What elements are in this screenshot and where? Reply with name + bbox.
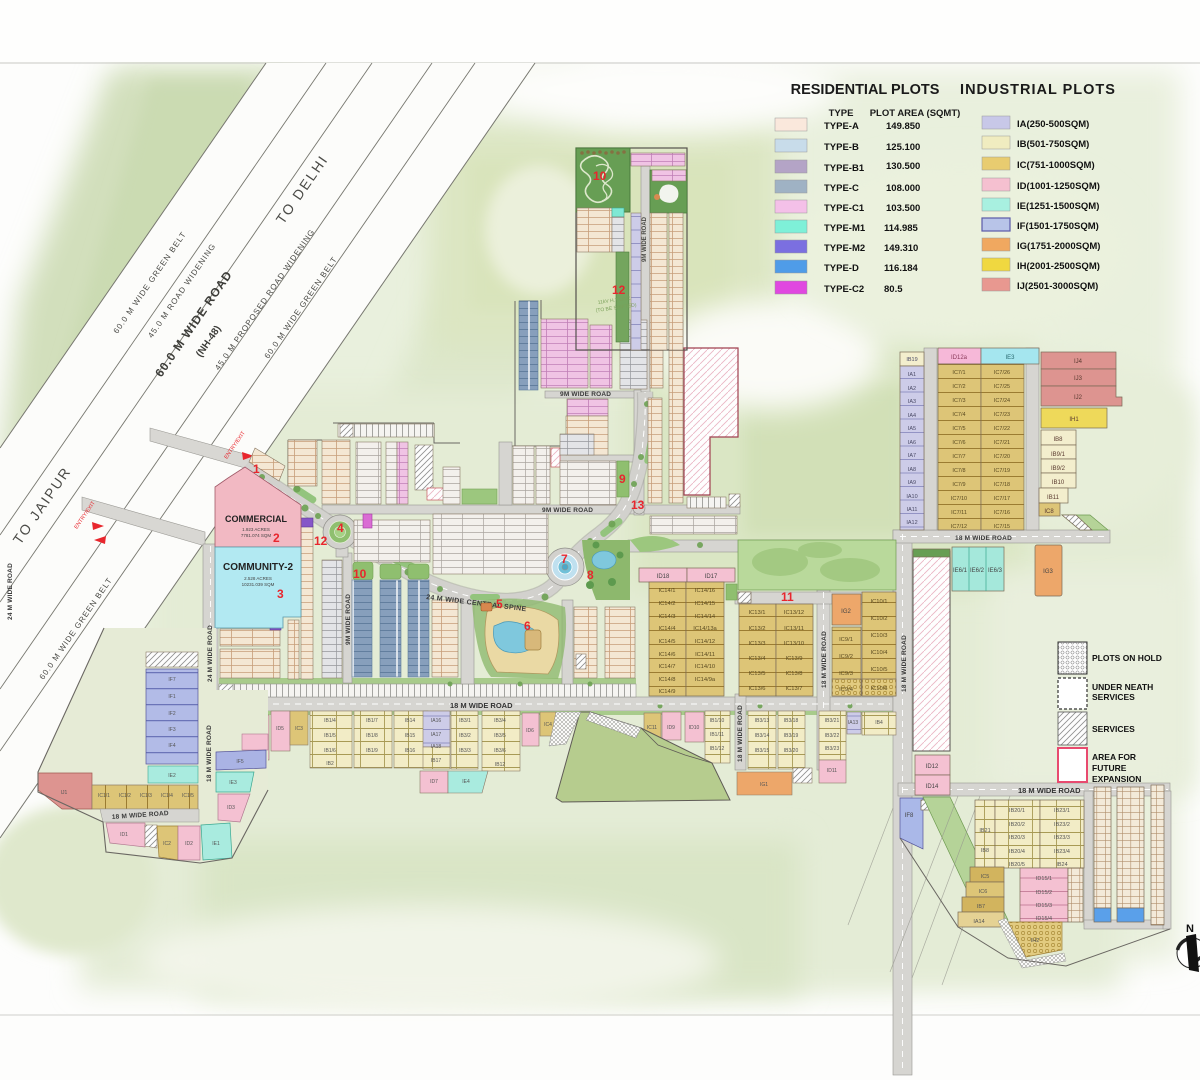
svg-text:IC10/3: IC10/3 [870,633,887,639]
svg-text:IC8: IC8 [1044,509,1054,515]
svg-text:IC11: IC11 [647,725,657,731]
svg-text:IC7/25: IC7/25 [994,384,1010,390]
svg-text:TYPE-M2: TYPE-M2 [824,243,865,254]
svg-text:N: N [1186,923,1194,935]
svg-text:IA5: IA5 [908,426,916,432]
svg-text:IB20/1: IB20/1 [1009,808,1025,814]
svg-text:IC13/6: IC13/6 [748,686,765,692]
svg-text:IC7/11: IC7/11 [951,510,967,516]
svg-text:IA6: IA6 [908,440,916,446]
svg-text:IC13/12: IC13/12 [784,610,804,616]
svg-text:IE3: IE3 [229,780,237,786]
svg-text:IC10/6: IC10/6 [870,686,887,692]
svg-text:IC7/20: IC7/20 [994,454,1010,460]
svg-text:12: 12 [314,534,328,548]
svg-text:IB1/9: IB1/9 [366,748,378,754]
svg-text:125.100: 125.100 [886,142,920,153]
svg-text:IA10: IA10 [906,494,917,500]
svg-text:18 M WIDE ROAD: 18 M WIDE ROAD [450,701,513,710]
svg-text:SERVICES: SERVICES [1092,724,1135,734]
svg-text:114.985: 114.985 [884,223,919,234]
svg-text:IE4: IE4 [462,779,470,785]
svg-text:IC14/6: IC14/6 [658,652,675,658]
svg-text:ID(1001-1250SQM): ID(1001-1250SQM) [1017,181,1100,192]
svg-text:IC13/9: IC13/9 [785,656,802,662]
svg-text:IB3/23: IB3/23 [825,746,840,752]
svg-text:IB3/22: IB3/22 [825,733,840,739]
svg-text:IC7/12: IC7/12 [951,524,967,530]
svg-text:IA16: IA16 [431,718,442,724]
svg-text:COMMERCIAL: COMMERCIAL [225,514,287,524]
svg-text:IB8: IB8 [1053,437,1063,443]
svg-text:SERVICES: SERVICES [1092,692,1135,702]
svg-text:ID18: ID18 [657,574,670,580]
svg-text:18 M WIDE ROAD: 18 M WIDE ROAD [1018,786,1081,795]
svg-text:ID14: ID14 [926,784,939,790]
svg-text:IA(250-500SQM): IA(250-500SQM) [1017,119,1089,130]
svg-text:IB3/6: IB3/6 [494,748,506,754]
svg-text:IC7/5: IC7/5 [952,426,965,432]
svg-text:IC14/9: IC14/9 [658,689,675,695]
svg-text:IE6/3: IE6/3 [988,568,1003,574]
svg-text:ID9: ID9 [667,725,675,731]
svg-text:ID15/1: ID15/1 [1036,876,1052,882]
svg-text:IC7/21: IC7/21 [994,440,1010,446]
svg-text:IC1/2: IC1/2 [119,793,131,799]
svg-text:9M WIDE ROAD: 9M WIDE ROAD [560,391,611,398]
svg-text:IC14/8: IC14/8 [658,677,675,683]
svg-text:IC7/23: IC7/23 [994,412,1010,418]
svg-text:6: 6 [524,619,531,633]
svg-text:TYPE-A: TYPE-A [824,121,859,132]
svg-text:IC1/5: IC1/5 [182,793,194,799]
svg-text:IB8: IB8 [981,848,989,854]
svg-text:IB1/10: IB1/10 [710,718,725,724]
svg-text:IH2: IH2 [1031,938,1040,944]
svg-text:7781.074 SQM: 7781.074 SQM [241,533,272,538]
svg-text:IC13/3: IC13/3 [748,641,765,647]
svg-text:IA3: IA3 [908,399,916,405]
svg-text:4: 4 [337,521,344,535]
svg-text:IJ4: IJ4 [1074,359,1083,365]
svg-text:IC14/10: IC14/10 [695,664,715,670]
svg-text:IB23/3: IB23/3 [1054,835,1070,841]
svg-text:IC7/6: IC7/6 [952,440,965,446]
svg-text:IB1/12: IB1/12 [710,746,725,752]
svg-text:IB24: IB24 [1056,862,1067,868]
svg-text:IC7/19: IC7/19 [994,468,1010,474]
svg-text:IF5: IF5 [236,759,243,765]
svg-text:TYPE-C2: TYPE-C2 [824,284,864,295]
svg-text:11: 11 [781,590,794,604]
svg-text:IC7/26: IC7/26 [994,370,1010,376]
svg-text:IB16: IB16 [405,748,416,754]
svg-text:ID2: ID2 [185,841,193,847]
svg-text:18 M WIDE ROAD: 18 M WIDE ROAD [737,705,744,762]
svg-text:IA18: IA18 [431,744,442,750]
svg-text:IB1/8: IB1/8 [366,733,378,739]
svg-text:IC14/13a: IC14/13a [693,626,717,632]
svg-text:COMMUNITY-2: COMMUNITY-2 [223,562,293,573]
svg-text:80.5: 80.5 [884,284,903,295]
svg-text:IA9: IA9 [908,480,916,486]
svg-text:IF3: IF3 [168,727,175,733]
svg-text:IC14/3: IC14/3 [658,614,675,620]
svg-text:10: 10 [353,567,367,581]
svg-text:IC7/24: IC7/24 [994,398,1010,404]
svg-text:1.923 ACRES: 1.923 ACRES [242,527,270,532]
svg-text:IC3: IC3 [295,726,303,732]
svg-text:IB12: IB12 [495,762,506,768]
svg-text:IC13/7: IC13/7 [785,686,802,692]
svg-text:IC1/4: IC1/4 [161,793,173,799]
svg-text:IB20/5: IB20/5 [1009,862,1025,868]
svg-text:IB20/4: IB20/4 [1009,849,1025,855]
svg-text:9M WIDE ROAD: 9M WIDE ROAD [345,594,352,645]
svg-text:TYPE: TYPE [829,108,854,119]
svg-text:IB14: IB14 [405,718,416,724]
svg-text:IB3/21: IB3/21 [825,718,840,724]
svg-text:IB15: IB15 [405,733,416,739]
svg-text:3: 3 [277,587,284,601]
svg-text:IB3/15: IB3/15 [755,748,770,754]
svg-text:IG(1751-2000SQM): IG(1751-2000SQM) [1017,241,1100,252]
svg-text:IE1: IE1 [212,841,220,847]
svg-text:IC13/2: IC13/2 [748,626,765,632]
svg-text:130.500: 130.500 [886,161,920,172]
svg-text:IC7/3: IC7/3 [952,398,965,404]
svg-text:TYPE-C: TYPE-C [824,183,859,194]
svg-text:7: 7 [561,552,568,566]
svg-text:116.184: 116.184 [884,263,919,274]
svg-text:IF(1501-1750SQM): IF(1501-1750SQM) [1017,221,1099,232]
svg-text:IC2: IC2 [163,841,171,847]
svg-text:18 M WIDE ROAD: 18 M WIDE ROAD [955,535,1012,542]
svg-text:IB3/13: IB3/13 [755,718,770,724]
svg-text:IC7/16: IC7/16 [994,510,1010,516]
svg-text:IC1/3: IC1/3 [140,793,152,799]
svg-text:8: 8 [587,568,594,582]
svg-text:IC10/2: IC10/2 [870,616,887,622]
svg-text:IE6/2: IE6/2 [970,568,985,574]
svg-text:ID15/2: ID15/2 [1036,890,1052,896]
svg-text:IF2: IF2 [168,711,175,717]
svg-text:IC7/9: IC7/9 [952,482,965,488]
svg-text:IB4: IB4 [875,720,883,726]
svg-text:INDUSTRIAL PLOTS: INDUSTRIAL PLOTS [960,82,1116,98]
svg-text:IA4: IA4 [908,413,916,419]
svg-text:ID5: ID5 [276,726,284,732]
svg-text:IC14/4: IC14/4 [658,626,676,632]
svg-text:12: 12 [612,283,626,297]
svg-text:18 M WIDE ROAD: 18 M WIDE ROAD [206,725,213,782]
svg-text:IB17: IB17 [431,758,442,764]
svg-text:IA11: IA11 [907,507,918,513]
svg-text:IC13/10: IC13/10 [784,641,804,647]
svg-text:IA17: IA17 [431,732,442,738]
svg-text:IB9/1: IB9/1 [1051,452,1066,458]
svg-text:IC(751-1000SQM): IC(751-1000SQM) [1017,160,1095,171]
svg-text:IF4: IF4 [168,743,175,749]
svg-text:ID15/4: ID15/4 [1036,916,1052,922]
svg-text:108.000: 108.000 [886,183,920,194]
svg-text:IC5: IC5 [981,874,990,880]
svg-text:IC10/1: IC10/1 [870,599,887,605]
svg-text:IG3: IG3 [1043,569,1053,575]
svg-text:IJ(2501-3000SQM): IJ(2501-3000SQM) [1017,281,1098,292]
svg-text:ID11: ID11 [827,768,837,774]
svg-text:IC14/12: IC14/12 [695,639,715,645]
svg-text:IB1/7: IB1/7 [366,718,378,724]
svg-text:IC7/4: IC7/4 [952,412,965,418]
svg-text:IE3: IE3 [1005,355,1015,361]
svg-text:IC13/4: IC13/4 [748,656,766,662]
svg-text:PLOT AREA (SQMT): PLOT AREA (SQMT) [870,108,961,119]
svg-text:IA13: IA13 [848,720,859,726]
svg-text:ID7: ID7 [430,779,438,785]
svg-text:ID12a: ID12a [951,355,968,361]
svg-text:IB23/2: IB23/2 [1054,822,1070,828]
svg-text:IC13/11: IC13/11 [784,626,804,632]
svg-text:IC7/1: IC7/1 [952,370,965,376]
svg-text:IB3/20: IB3/20 [784,748,799,754]
svg-text:IB3/3: IB3/3 [459,748,471,754]
svg-text:IG1: IG1 [760,782,768,788]
svg-text:IB7: IB7 [977,904,985,910]
svg-text:IC7/8: IC7/8 [952,468,965,474]
svg-text:IB3/2: IB3/2 [459,733,471,739]
svg-text:IC9/1: IC9/1 [839,637,853,643]
svg-text:IC7/10: IC7/10 [951,496,967,502]
svg-text:IA7: IA7 [908,453,916,459]
svg-text:IC9/2: IC9/2 [839,654,853,660]
svg-text:ID17: ID17 [705,574,718,580]
svg-text:IC1/1: IC1/1 [98,793,110,799]
svg-text:18 M WIDE ROAD: 18 M WIDE ROAD [901,635,908,692]
svg-text:18 M WIDE ROAD: 18 M WIDE ROAD [821,631,828,688]
svg-text:IC14/1: IC14/1 [658,588,675,594]
svg-text:RESIDENTIAL PLOTS: RESIDENTIAL PLOTS [791,82,940,98]
svg-text:IC7/18: IC7/18 [994,482,1010,488]
svg-text:IC10/4: IC10/4 [870,650,888,656]
svg-text:IA2: IA2 [908,386,916,392]
svg-text:13: 13 [631,498,645,512]
svg-text:IB3/14: IB3/14 [755,733,770,739]
svg-text:TYPE-B1: TYPE-B1 [824,163,865,174]
svg-text:IG2: IG2 [841,609,851,615]
svg-text:IB1/4: IB1/4 [324,718,336,724]
svg-text:IC7/17: IC7/17 [994,496,1010,502]
svg-text:IE2: IE2 [168,773,176,779]
svg-text:IC14/2: IC14/2 [658,601,675,607]
svg-text:ID6: ID6 [526,728,534,734]
svg-text:IC6: IC6 [979,889,988,895]
svg-text:IC7/22: IC7/22 [994,426,1010,432]
svg-text:IC7/2: IC7/2 [952,384,965,390]
svg-text:IF1: IF1 [168,694,175,700]
svg-text:IC14/15: IC14/15 [695,601,715,607]
svg-text:IC14/5: IC14/5 [658,639,675,645]
svg-text:5: 5 [496,597,503,611]
svg-text:2.528 ACRES: 2.528 ACRES [244,576,272,581]
svg-text:IJ3: IJ3 [1074,376,1083,382]
svg-text:IC14/14: IC14/14 [695,614,716,620]
svg-text:10231.039 SQM: 10231.039 SQM [242,582,275,587]
svg-text:IB20/2: IB20/2 [1009,822,1025,828]
svg-text:IC14/16: IC14/16 [695,588,715,594]
svg-text:IC7/7: IC7/7 [952,454,965,460]
svg-text:IC13/5: IC13/5 [748,671,765,677]
svg-text:IC9/3: IC9/3 [839,671,853,677]
svg-text:IB1/5: IB1/5 [324,733,336,739]
svg-text:2: 2 [273,531,280,545]
svg-text:149.850: 149.850 [886,121,920,132]
svg-text:IC14/9a: IC14/9a [695,677,716,683]
svg-text:1: 1 [253,462,260,476]
svg-text:ID1: ID1 [120,832,128,838]
svg-text:IB3/19: IB3/19 [784,733,799,739]
svg-text:IC4: IC4 [544,722,552,728]
svg-text:IB23/4: IB23/4 [1054,849,1070,855]
svg-text:IA14: IA14 [973,919,984,925]
svg-text:ID12: ID12 [926,764,939,770]
svg-text:IC13/8: IC13/8 [785,671,802,677]
svg-text:103.500: 103.500 [886,203,920,214]
svg-text:IF7: IF7 [168,677,175,683]
svg-text:IC14/11: IC14/11 [695,652,715,658]
svg-text:IB1/11: IB1/11 [710,732,724,738]
svg-text:IB10: IB10 [1052,480,1065,486]
svg-text:IB2: IB2 [326,761,334,767]
svg-text:TYPE-D: TYPE-D [824,263,859,274]
svg-text:9M WIDE ROAD: 9M WIDE ROAD [642,216,648,262]
svg-text:IB3/5: IB3/5 [494,733,506,739]
svg-text:IE6/1: IE6/1 [953,568,968,574]
svg-text:24 M WIDE ROAD: 24 M WIDE ROAD [7,563,14,620]
svg-text:IB23/1: IB23/1 [1054,808,1070,814]
svg-text:IB1/6: IB1/6 [324,748,336,754]
svg-text:IE(1251-1500SQM): IE(1251-1500SQM) [1017,201,1099,212]
svg-text:TYPE-B: TYPE-B [824,142,859,153]
svg-text:TYPE-M1: TYPE-M1 [824,223,866,234]
svg-text:IB(501-750SQM): IB(501-750SQM) [1017,139,1089,150]
svg-text:IJ2: IJ2 [1074,395,1083,401]
svg-text:149.310: 149.310 [884,243,918,254]
svg-text:ID15/3: ID15/3 [1036,903,1052,909]
svg-text:IA1: IA1 [908,372,916,378]
svg-text:ID3: ID3 [227,805,235,811]
svg-text:24 M WIDE ROAD: 24 M WIDE ROAD [207,625,214,682]
svg-text:IB19: IB19 [906,357,917,363]
svg-text:AREA FOR: AREA FOR [1092,752,1136,762]
svg-text:IB3/1: IB3/1 [459,718,471,724]
svg-text:10: 10 [593,169,607,183]
svg-text:IB11: IB11 [1047,495,1060,501]
svg-text:IB21: IB21 [979,828,990,834]
svg-text:ID10: ID10 [689,725,700,731]
svg-text:PLOTS ON HOLD: PLOTS ON HOLD [1092,653,1162,663]
svg-text:IA12: IA12 [906,520,917,526]
svg-text:IC13/1: IC13/1 [748,610,765,616]
svg-text:IB20/3: IB20/3 [1009,835,1025,841]
svg-text:IB9/2: IB9/2 [1051,466,1066,472]
svg-text:IH1: IH1 [1069,417,1079,423]
svg-text:IB3/4: IB3/4 [494,718,506,724]
svg-text:TYPE-C1: TYPE-C1 [824,203,865,214]
svg-text:FUTURE: FUTURE [1092,763,1127,773]
svg-text:IH(2001-2500SQM): IH(2001-2500SQM) [1017,261,1100,272]
svg-text:IC7/15: IC7/15 [994,524,1010,530]
svg-text:UNDER NEATH: UNDER NEATH [1092,682,1153,692]
svg-text:IC9/4: IC9/4 [839,687,854,693]
svg-text:EXPANSION: EXPANSION [1092,774,1141,784]
svg-text:IF8: IF8 [905,813,914,819]
svg-text:IJ1: IJ1 [61,790,68,796]
svg-text:IC14/7: IC14/7 [658,664,675,670]
svg-text:9: 9 [619,472,626,486]
svg-text:9M WIDE ROAD: 9M WIDE ROAD [542,507,593,514]
svg-text:IC10/5: IC10/5 [870,667,887,673]
svg-text:IA8: IA8 [908,467,916,473]
svg-text:IB3/18: IB3/18 [784,718,799,724]
